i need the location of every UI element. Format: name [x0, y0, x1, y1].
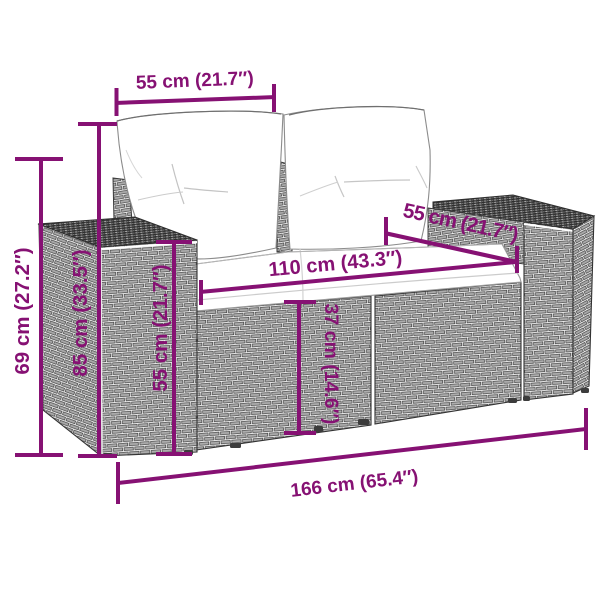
svg-text:37 cm (14.6″): 37 cm (14.6″): [320, 304, 342, 425]
svg-text:85 cm (33.5″): 85 cm (33.5″): [69, 249, 92, 376]
svg-text:69 cm (27.2″): 69 cm (27.2″): [11, 247, 34, 374]
svg-text:55 cm (21.7″): 55 cm (21.7″): [149, 264, 172, 391]
